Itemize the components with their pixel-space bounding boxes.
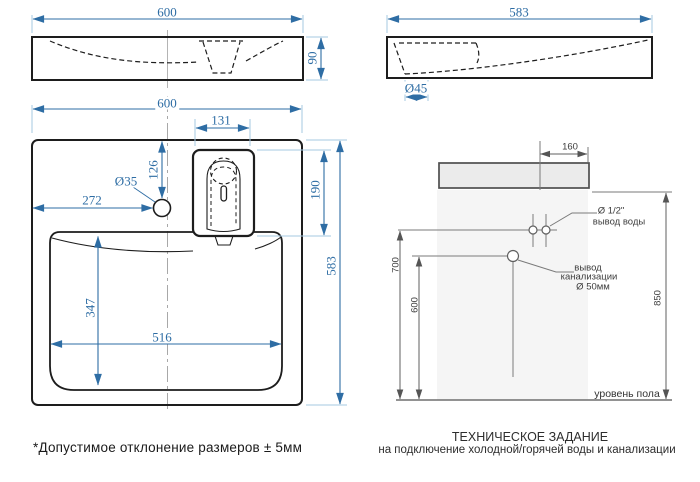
plan-view-drawing	[32, 96, 347, 412]
side-view-drawing	[387, 15, 652, 101]
drawing-canvas	[0, 0, 700, 482]
subtitle-tech-task: на подключение холодной/горячей воды и к…	[378, 444, 675, 456]
front-view-drawing	[32, 15, 328, 88]
sink-technical-drawing: { "colors": { "dim_blue": "#2e6da4", "ex…	[0, 0, 700, 482]
title-tech-task: ТЕХНИЧЕСКОЕ ЗАДАНИЕ	[452, 430, 608, 444]
note-tolerance: *Допустимое отклонение размеров ± 5мм	[33, 440, 302, 455]
elevation-drawing	[396, 141, 672, 400]
